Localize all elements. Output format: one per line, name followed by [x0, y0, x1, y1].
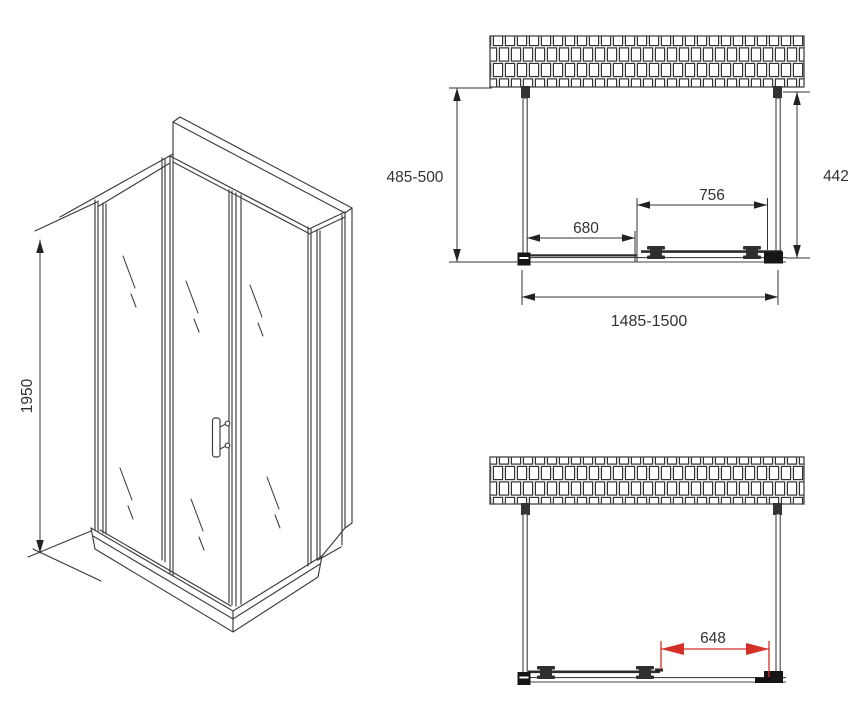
opening-dimension: 648 — [661, 630, 769, 677]
wall-bracket — [773, 503, 782, 515]
wall-bracket — [521, 86, 530, 98]
front-face — [170, 156, 320, 606]
right-side-panel — [311, 212, 345, 560]
corner-block — [764, 252, 783, 264]
dimension-label-fixed-width: 680 — [573, 220, 599, 237]
dimension-label-opening: 648 — [700, 630, 726, 647]
dimension-tick — [655, 669, 663, 672]
dimension-label-side-depth: 485-500 — [387, 169, 444, 186]
wall-hatch — [490, 457, 804, 504]
dimension-label-door-width: 756 — [699, 187, 725, 204]
wall-bracket — [521, 503, 530, 515]
bottom-plan-view: 648 — [490, 457, 804, 685]
shower-tray — [28, 528, 322, 632]
dimension-label-overall-width: 1485-1500 — [611, 313, 688, 330]
glass-shine-marks — [120, 256, 280, 550]
left-side-panel — [60, 154, 173, 576]
height-dimension: 1950 — [19, 202, 101, 581]
side-panel — [776, 514, 780, 678]
wall-hatch — [490, 36, 804, 87]
door-handle — [213, 418, 230, 457]
iso-view: 1950 — [19, 117, 352, 632]
door-bumper — [755, 678, 771, 684]
top-plan-view: 485-500 442 756 680 1485-1500 — [387, 36, 849, 330]
dimension-label-height: 1950 — [19, 378, 36, 413]
dimension-label-wall-depth: 442 — [823, 168, 849, 185]
drawing-sheet: 1950 485-500 — [0, 0, 862, 710]
shower-enclosure-diagram: 1950 485-500 — [0, 0, 862, 710]
side-panel — [776, 98, 780, 258]
side-panel — [523, 98, 527, 258]
wall-bracket — [773, 86, 782, 98]
back-wall — [173, 117, 352, 556]
side-panel — [523, 514, 527, 678]
